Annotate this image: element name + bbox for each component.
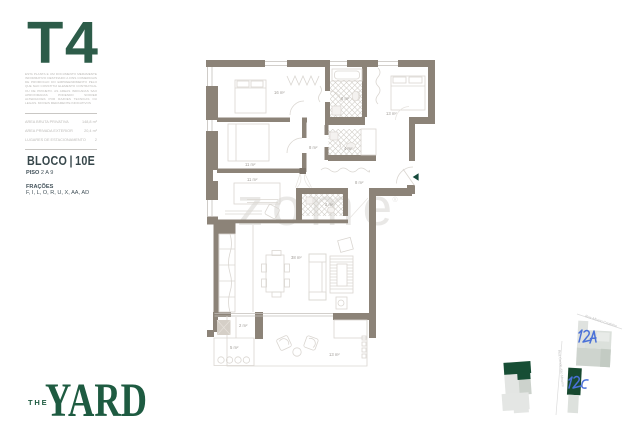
svg-text:8 m²: 8 m² [355,180,364,185]
svg-text:6 m²: 6 m² [341,96,350,101]
svg-text:11 m²: 11 m² [245,162,256,167]
svg-text:38 m²: 38 m² [291,255,302,260]
svg-text:8 m²: 8 m² [309,145,318,150]
svg-text:2 m²: 2 m² [239,323,248,328]
svg-text:2 m²: 2 m² [325,202,334,207]
svg-text:13 m²: 13 m² [329,352,340,357]
svg-text:Rua Albano Coutinho: Rua Albano Coutinho [585,314,618,328]
svg-text:13 m²: 13 m² [386,111,397,116]
svg-text:16 m²: 16 m² [274,90,285,95]
svg-text:4 m²: 4 m² [344,146,353,151]
svg-text:11 m²: 11 m² [247,177,258,182]
svg-text:Rua Conde Alto Mearim: Rua Conde Alto Mearim [557,350,565,387]
svg-text:5 m²: 5 m² [230,345,239,350]
